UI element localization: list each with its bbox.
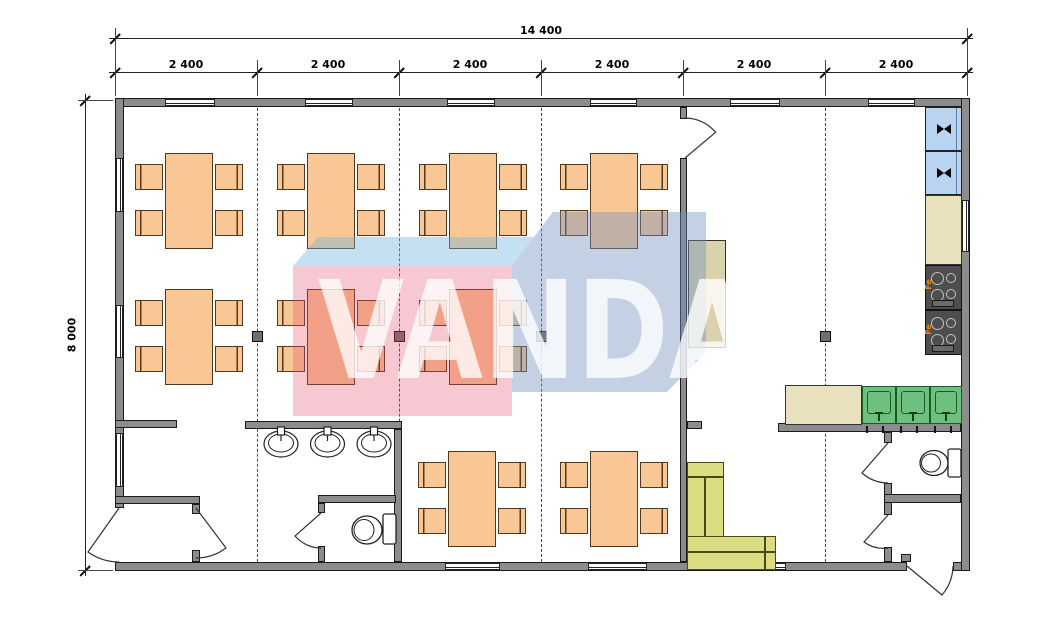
watermark-text: VANDA xyxy=(295,264,705,400)
door-swing xyxy=(862,443,888,483)
door-swing xyxy=(685,118,716,158)
washbasin-tap xyxy=(371,427,378,435)
door-swing xyxy=(907,566,953,595)
toilet-tank xyxy=(383,514,396,544)
floor-plan: VANDA FeFe xyxy=(0,0,1047,629)
door-swing xyxy=(864,515,888,548)
door-swing xyxy=(295,513,321,548)
toilet-tank xyxy=(948,449,961,477)
washbasin-tap xyxy=(278,427,285,435)
door-swing xyxy=(88,508,119,562)
door-swing xyxy=(196,508,226,558)
washbasin-tap xyxy=(324,427,331,435)
